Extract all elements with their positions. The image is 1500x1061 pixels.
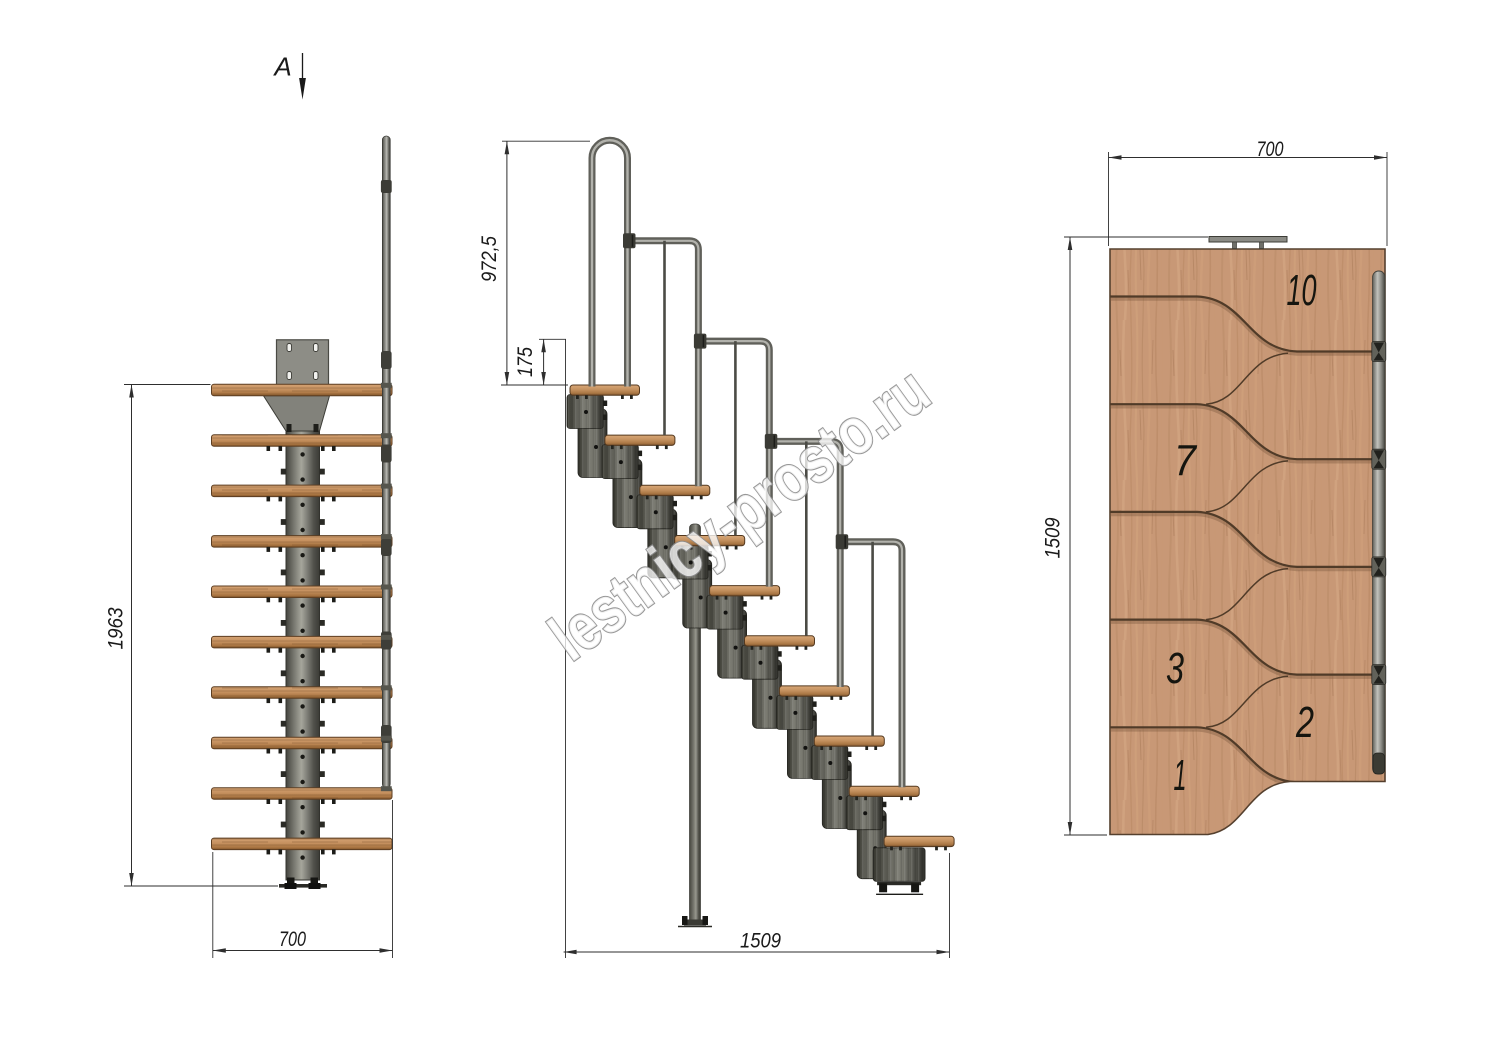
svg-text:175: 175 [514, 347, 537, 377]
svg-text:7: 7 [1174, 437, 1197, 486]
svg-text:2: 2 [1295, 698, 1314, 747]
svg-text:1509: 1509 [740, 930, 781, 953]
svg-text:1963: 1963 [105, 607, 128, 649]
svg-text:1: 1 [1174, 751, 1187, 800]
svg-text:A: A [272, 52, 291, 82]
svg-text:700: 700 [1257, 138, 1284, 161]
svg-text:1509: 1509 [1042, 517, 1065, 558]
svg-text:700: 700 [279, 928, 306, 951]
svg-text:10: 10 [1287, 266, 1317, 315]
svg-text:972,5: 972,5 [478, 236, 501, 282]
svg-text:3: 3 [1166, 644, 1184, 693]
